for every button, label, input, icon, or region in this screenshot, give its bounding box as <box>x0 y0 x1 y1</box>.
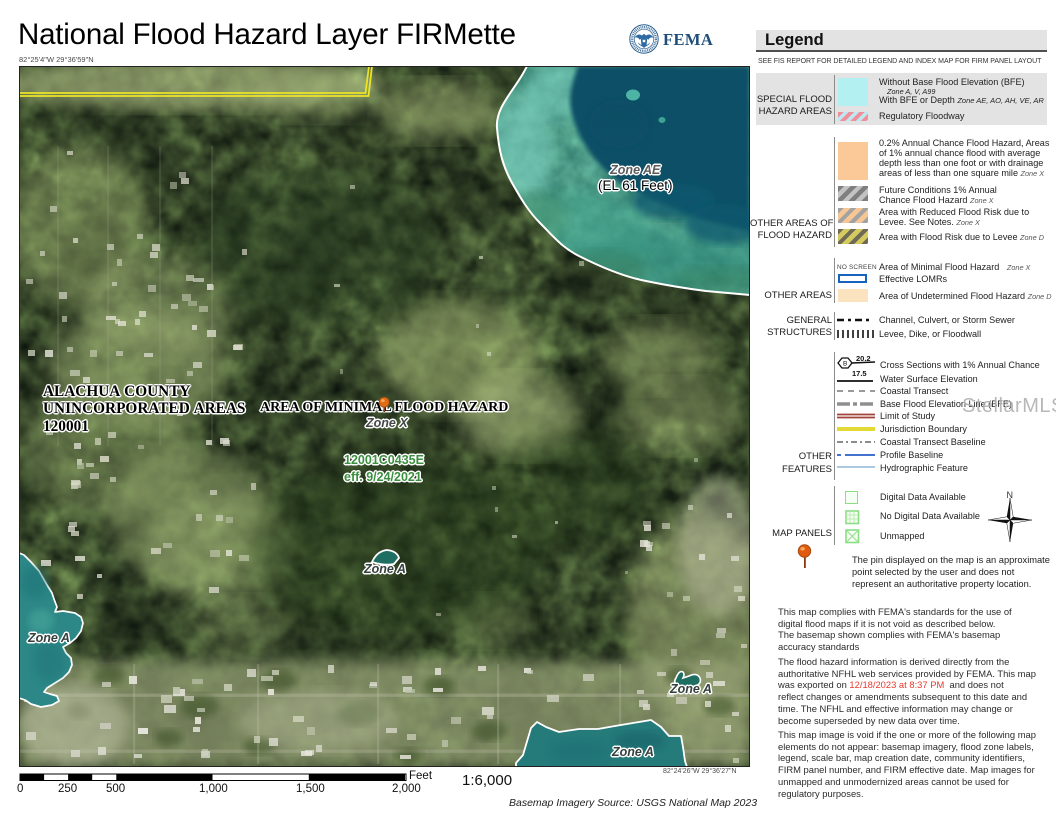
svg-text:B: B <box>843 361 847 368</box>
